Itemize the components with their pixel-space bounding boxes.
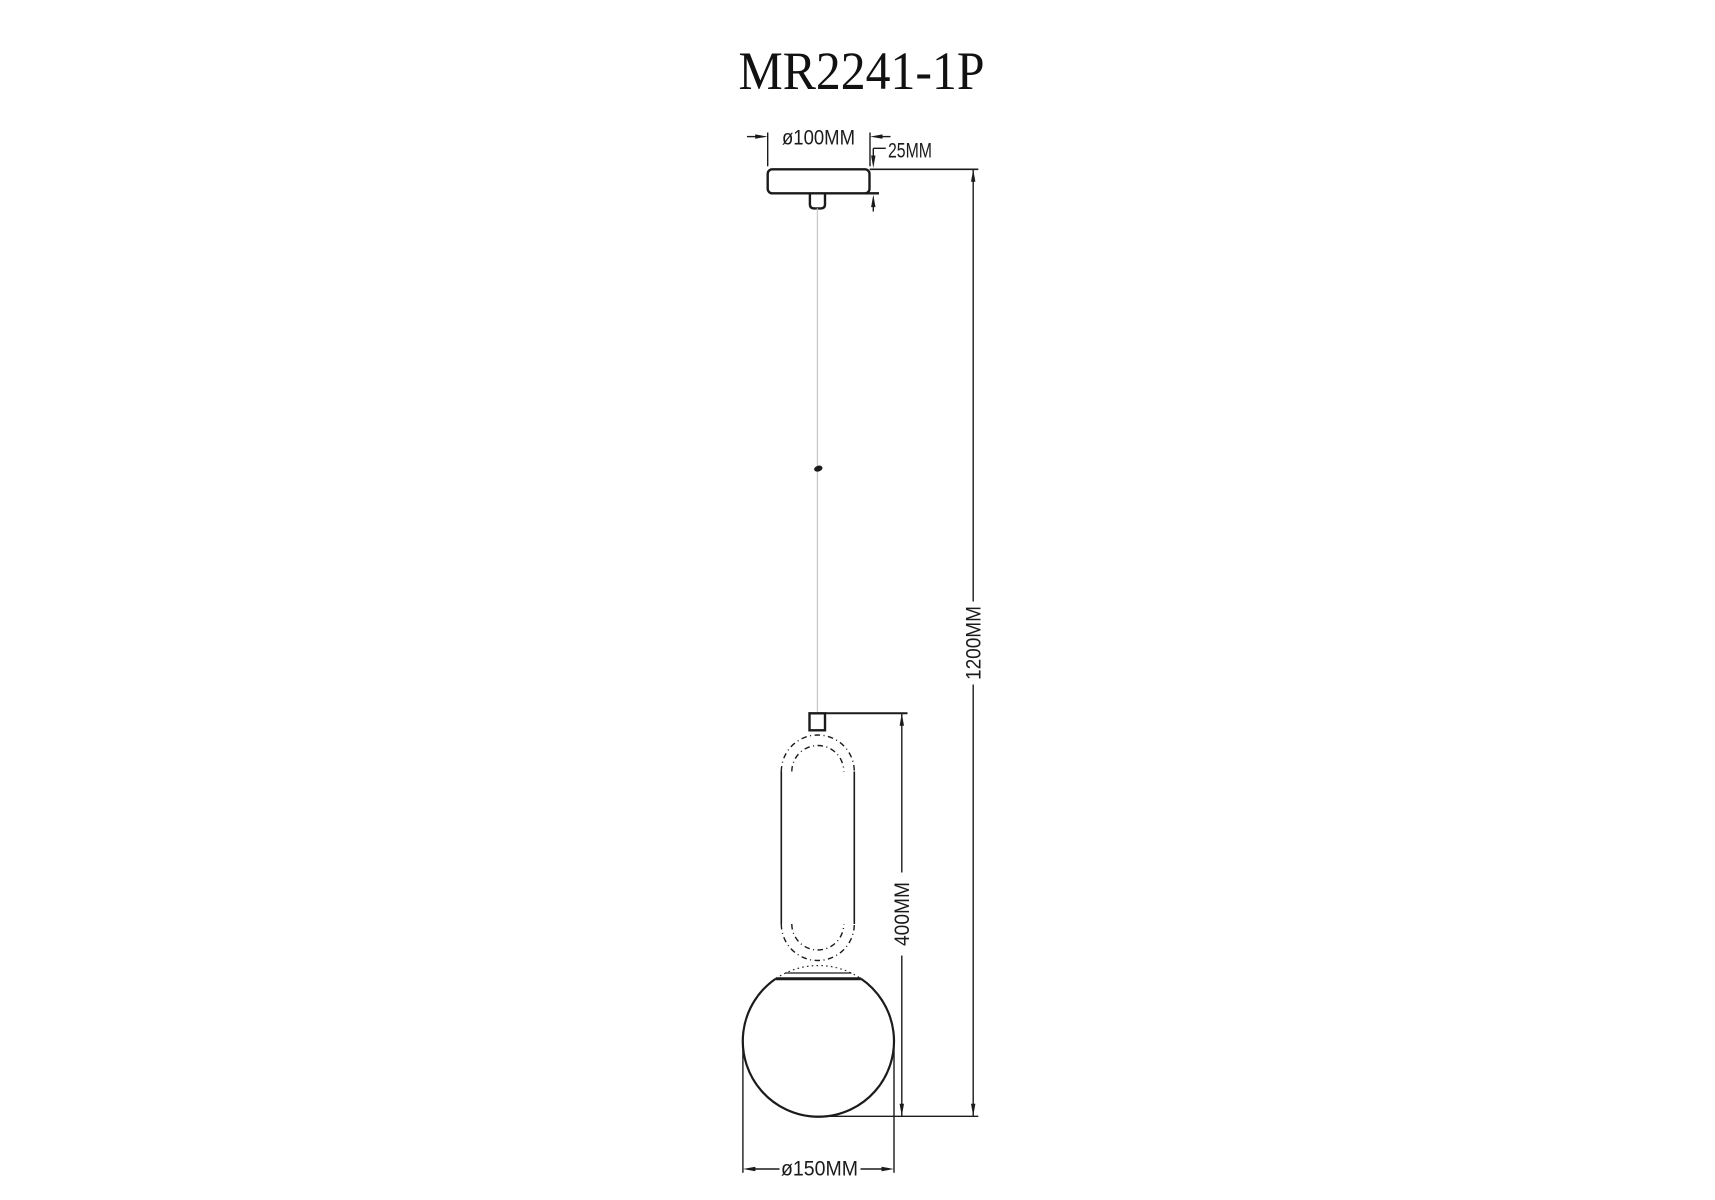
dim-canopy-height: 25MM	[871, 139, 932, 211]
glass-sphere	[743, 966, 894, 1117]
ceiling-canopy	[768, 169, 879, 208]
dim-canopy-diameter: ø100MM	[747, 126, 891, 166]
canopy-stem	[810, 193, 825, 208]
oval-inner-bottom-arc	[792, 924, 844, 950]
oval-outer-top-arc	[781, 735, 854, 772]
oval-frame	[781, 735, 854, 961]
arrowhead-up-icon	[871, 195, 875, 208]
drawing-page: MR2241-1P	[0, 0, 1715, 1200]
arrowhead-down-icon	[971, 1104, 975, 1117]
sphere-diameter-label: ø150MM	[781, 1157, 858, 1180]
arrowhead-down-icon	[871, 156, 875, 169]
arrowhead-up-icon	[971, 169, 975, 182]
dim-sphere-diameter: ø150MM	[743, 1047, 894, 1180]
arrowhead-right-icon	[755, 134, 768, 138]
arrowhead-left-icon	[870, 134, 883, 138]
sphere-outline	[743, 979, 894, 1117]
canopy-diameter-label: ø100MM	[782, 126, 855, 149]
arrowhead-down-icon	[900, 1104, 904, 1117]
arrowhead-right-icon	[882, 1167, 895, 1171]
dim-pendant-height: 400MM	[826, 713, 915, 1116]
dim-overall-height: 1200MM	[814, 169, 986, 1116]
oval-outer-bottom-arc	[781, 924, 854, 961]
arrowhead-up-icon	[900, 713, 904, 726]
pendant-height-label: 400MM	[891, 882, 914, 946]
canopy-body	[768, 169, 870, 193]
sphere-hidden-top-arc	[776, 966, 861, 979]
cable-knot	[813, 465, 823, 473]
product-code-title: MR2241-1P	[739, 41, 985, 101]
canopy-height-label: 25MM	[888, 139, 932, 162]
dimension-drawing: MR2241-1P	[0, 0, 1715, 1200]
suspension-cable	[813, 208, 823, 713]
oval-inner-top-arc	[792, 746, 844, 772]
connector-square	[810, 713, 826, 730]
arrowhead-left-icon	[743, 1167, 756, 1171]
cable-connector	[810, 713, 826, 730]
overall-drop-label: 1200MM	[963, 606, 986, 680]
